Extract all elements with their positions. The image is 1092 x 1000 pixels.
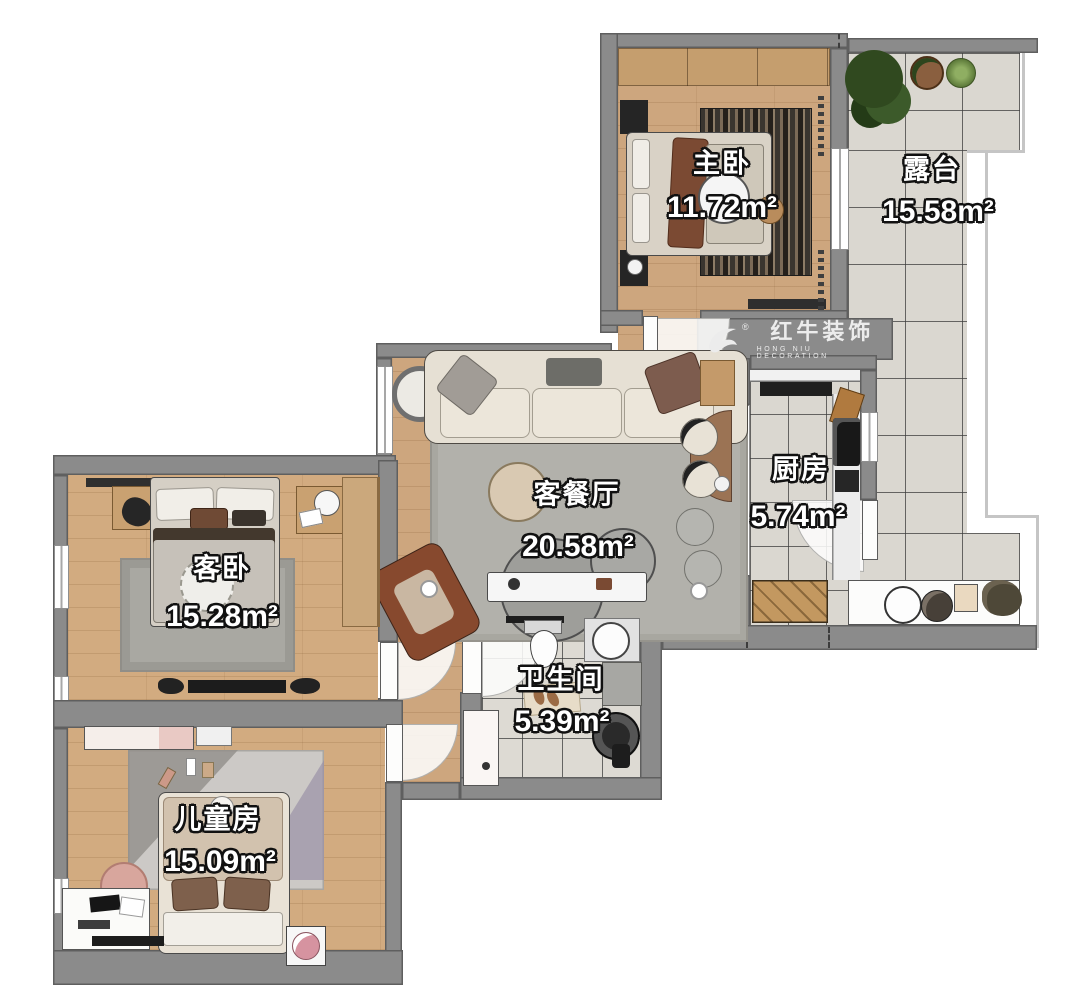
dashed-wall-mark: [828, 627, 830, 648]
room-label-kitchen: 厨房: [772, 448, 830, 487]
kitchen-pantry-shelf: [752, 580, 828, 623]
guest-door-leaf: [380, 642, 398, 700]
master-pillow: [632, 139, 650, 189]
guest-tv-decor: [290, 678, 320, 694]
kitchen-stove: [760, 382, 832, 396]
bath-sink-basin: [592, 622, 630, 660]
living-stool: [676, 508, 714, 546]
kids-monitor: [89, 894, 120, 912]
shelf-round-table: [921, 590, 953, 622]
master-pillow: [632, 193, 650, 243]
brand-logo: ® 红牛装饰 HONG NIU DECORATION: [706, 324, 888, 356]
kitchen-appliance-small: [835, 470, 859, 492]
window-master-right: [831, 148, 849, 250]
master-curtain: [818, 92, 824, 156]
room-label-guest: 客卧: [193, 547, 251, 586]
room-label-living: 客餐厅: [534, 473, 621, 512]
kids-keyboard: [78, 920, 110, 929]
brand-subtitle: HONG NIU DECORATION: [757, 346, 888, 360]
shelf-fan: [884, 586, 922, 624]
master-closet: [618, 48, 830, 86]
terrace-boundary-line: [967, 150, 1025, 153]
floor-plan: ® 红牛装饰 HONG NIU DECORATION 主卧 11.72m² 露台…: [0, 0, 1092, 1000]
kids-toy-block: [202, 762, 214, 778]
dining-chair: [680, 418, 718, 456]
wall-kids-bottom: [53, 950, 403, 985]
guest-tv-decor: [158, 678, 184, 694]
kids-door-leaf: [386, 724, 403, 782]
shower-fixture: [612, 744, 630, 768]
guest-tv: [188, 680, 286, 693]
room-area-bath: 5.39m²: [514, 705, 609, 739]
guest-cushion-brown: [190, 508, 228, 530]
wall-bath-right: [640, 618, 662, 800]
terrace-succulent: [946, 58, 976, 88]
corridor-cabinet: [463, 710, 499, 786]
shelf-box: [954, 584, 978, 612]
kids-pillow: [223, 876, 271, 911]
floor-spotlight: [690, 582, 708, 600]
room-label-kids: 儿童房: [175, 798, 262, 837]
brand-bird-icon: [706, 325, 740, 355]
master-nightstand-lamp: [627, 259, 643, 275]
wall-corridor-bottom: [402, 782, 460, 800]
bath-door-leaf: [462, 636, 482, 694]
hall-side-cabinet: [700, 360, 735, 406]
kids-paper: [119, 896, 145, 917]
room-area-guest: 15.28m²: [166, 600, 278, 634]
sofa-cushion: [532, 388, 622, 438]
room-label-terrace: 露台: [903, 148, 961, 187]
kitchen-upper-cabinet: [750, 370, 860, 382]
window-living-left: [377, 366, 393, 454]
kitchen-appliance: [833, 418, 860, 466]
room-area-kitchen: 5.74m²: [750, 500, 845, 534]
tv-console-decor: [596, 578, 612, 590]
wall-master-left: [600, 33, 618, 333]
kids-toy-block: [186, 758, 196, 776]
shelf-plant-sculpture: [982, 580, 1022, 616]
guest-wardrobe: [342, 477, 380, 627]
kids-cabinet: [196, 726, 232, 746]
master-nightstand-top: [620, 100, 648, 134]
master-tv-bench: [748, 299, 826, 309]
kids-bed-footboard: [163, 912, 283, 946]
room-area-master: 11.72m²: [667, 191, 777, 225]
kids-drum-face: [292, 932, 320, 960]
window-kitchen-right: [861, 412, 878, 462]
master-curtain: [818, 250, 824, 310]
kids-tv-strip: [92, 936, 164, 946]
terrace-plant-pot: [910, 56, 944, 90]
wall-guest-top: [53, 455, 396, 475]
room-label-bath: 卫生间: [518, 658, 605, 697]
terrace-plant-large: [845, 50, 903, 108]
wall-guest-kids-shared: [53, 700, 403, 728]
guest-cushion-dark: [232, 510, 266, 526]
room-area-living: 20.58m²: [522, 530, 634, 564]
brand-name: 红牛装饰: [770, 321, 874, 343]
wall-master-top: [600, 33, 848, 48]
room-area-terrace: 15.58m²: [882, 195, 994, 229]
tv-console-decor: [508, 578, 520, 590]
terrace-boundary-line: [985, 515, 1039, 518]
floor-spotlight: [420, 580, 438, 598]
kids-wardrobe: [84, 726, 194, 750]
window-guest-left-1: [54, 545, 69, 609]
kitchen-door-leaf: [862, 500, 878, 560]
room-area-kids: 15.09m²: [164, 845, 276, 879]
dashed-wall-mark: [838, 34, 840, 48]
bath-cabinet: [602, 662, 642, 706]
terrace-boundary-line: [1022, 48, 1025, 152]
corridor-cabinet-knob: [482, 762, 490, 770]
room-label-master: 主卧: [693, 142, 751, 181]
dining-side-plate: [714, 476, 730, 492]
kids-pillow: [171, 876, 219, 911]
wall-master-bottom-left: [600, 310, 643, 326]
registered-mark: ®: [742, 322, 749, 332]
sofa-tray: [546, 358, 602, 386]
